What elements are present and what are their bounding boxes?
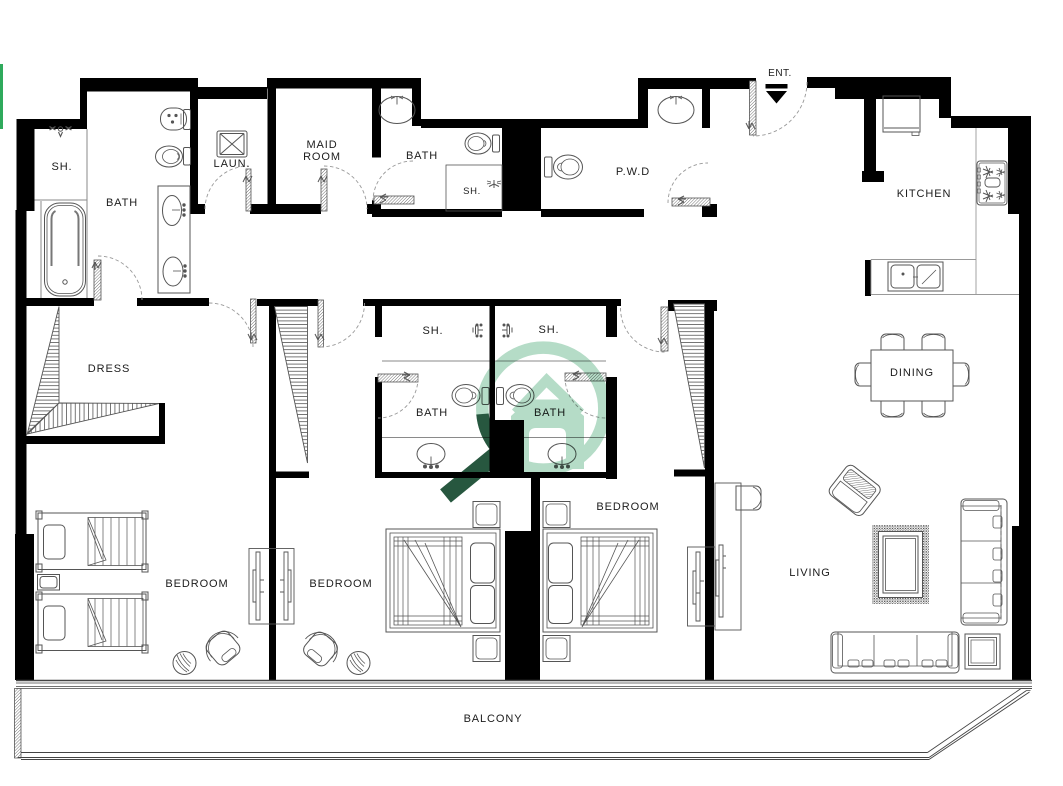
svg-text:P.W.D: P.W.D [616,166,650,178]
svg-text:KITCHEN: KITCHEN [897,188,952,200]
svg-text:DRESS: DRESS [88,363,130,375]
svg-text:ROOM: ROOM [303,151,341,163]
svg-text:BEDROOM: BEDROOM [309,578,372,590]
svg-text:DINING: DINING [890,367,934,379]
svg-text:SH.: SH. [422,325,443,337]
svg-text:BATH: BATH [106,197,138,209]
svg-text:LIVING: LIVING [789,567,830,579]
svg-text:SH.: SH. [463,186,481,197]
svg-text:MAID: MAID [306,139,337,151]
svg-text:SH.: SH. [51,161,72,173]
svg-text:SH.: SH. [538,324,559,336]
svg-text:ENT.: ENT. [768,68,792,79]
svg-text:BEDROOM: BEDROOM [165,578,228,590]
svg-text:BEDROOM: BEDROOM [596,501,659,513]
svg-text:BATH: BATH [406,150,438,162]
svg-text:LAUN.: LAUN. [214,158,251,170]
svg-text:BATH: BATH [416,407,448,419]
svg-text:BALCONY: BALCONY [464,713,523,725]
